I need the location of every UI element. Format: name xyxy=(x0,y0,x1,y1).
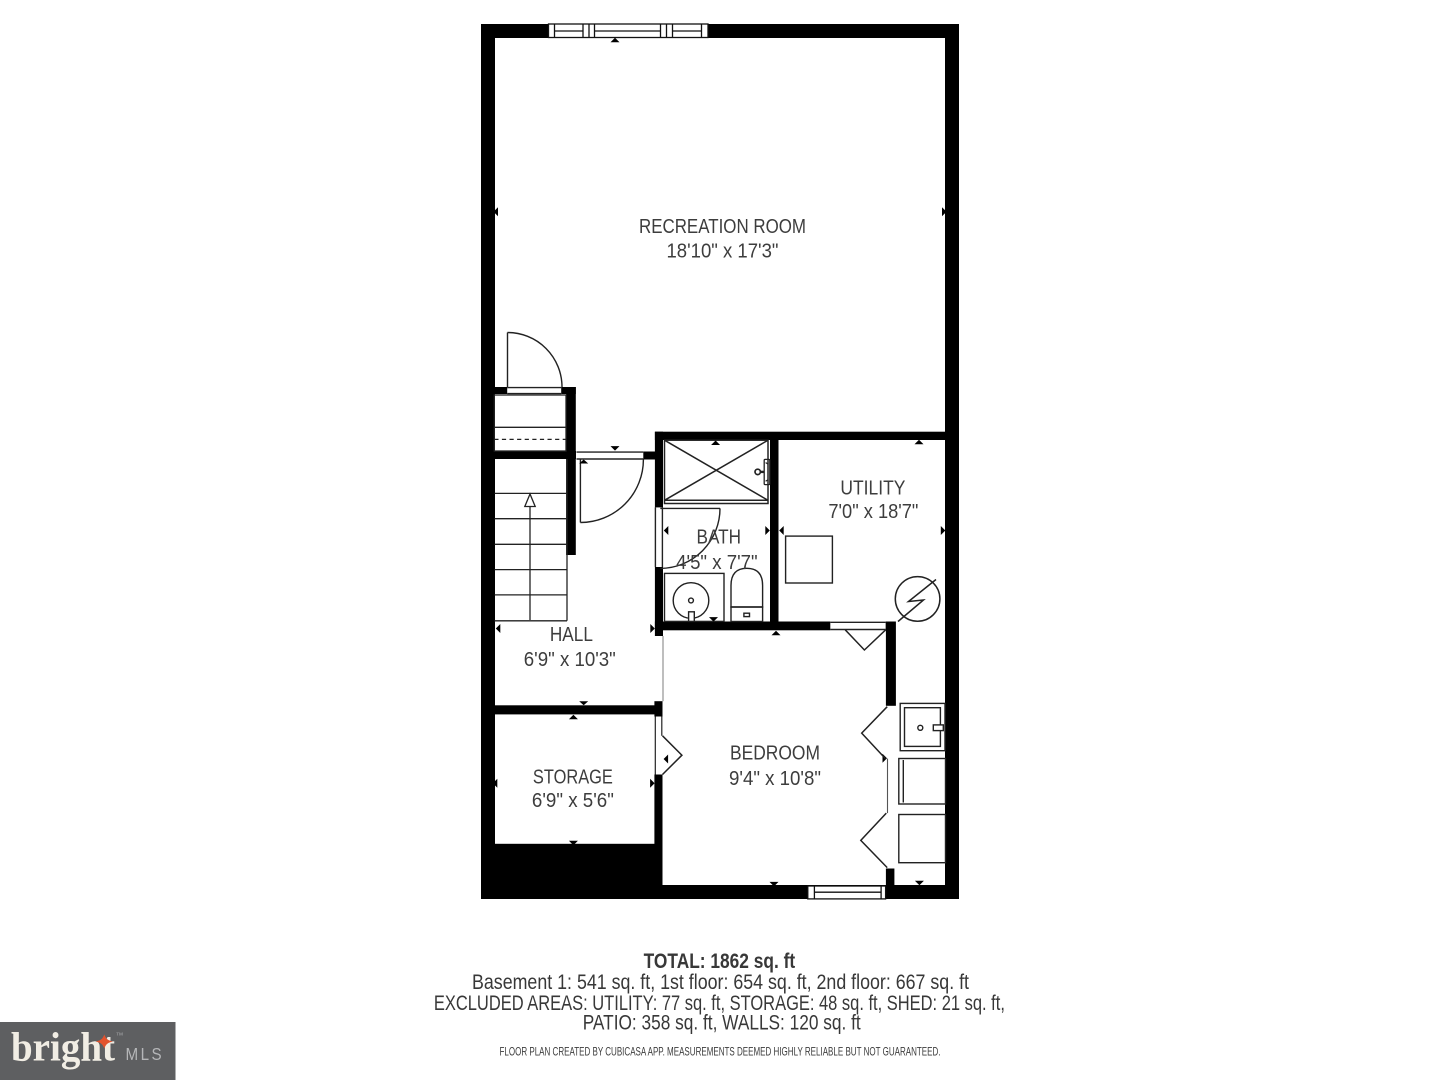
svg-text:bright: bright xyxy=(11,1024,115,1070)
svg-text:STORAGE: STORAGE xyxy=(533,766,613,789)
svg-text:TOTAL: 1862 sq. ft: TOTAL: 1862 sq. ft xyxy=(644,950,796,973)
svg-text:4'5" x 7'7": 4'5" x 7'7" xyxy=(676,551,758,574)
svg-text:BEDROOM: BEDROOM xyxy=(730,741,820,764)
svg-text:MLS: MLS xyxy=(126,1044,165,1064)
svg-text:6'9" x 5'6": 6'9" x 5'6" xyxy=(532,789,614,812)
svg-text:Basement 1: 541 sq. ft, 1st fl: Basement 1: 541 sq. ft, 1st floor: 654 s… xyxy=(472,971,969,994)
svg-text:7'0" x 18'7": 7'0" x 18'7" xyxy=(828,500,918,523)
svg-text:™: ™ xyxy=(116,1031,124,1040)
svg-text:6'9" x 10'3": 6'9" x 10'3" xyxy=(524,648,616,671)
svg-text:18'10" x 17'3": 18'10" x 17'3" xyxy=(667,240,779,263)
svg-text:UTILITY: UTILITY xyxy=(840,477,905,500)
svg-text:BATH: BATH xyxy=(697,526,742,549)
svg-text:9'4" x 10'8": 9'4" x 10'8" xyxy=(729,767,821,790)
svg-text:HALL: HALL xyxy=(550,623,593,646)
svg-text:PATIO: 358 sq. ft, WALLS: 120: PATIO: 358 sq. ft, WALLS: 120 sq. ft xyxy=(583,1012,861,1035)
svg-text:RECREATION ROOM: RECREATION ROOM xyxy=(639,215,806,238)
svg-text:FLOOR PLAN CREATED BY CUBICASA: FLOOR PLAN CREATED BY CUBICASA APP. MEAS… xyxy=(500,1045,941,1059)
